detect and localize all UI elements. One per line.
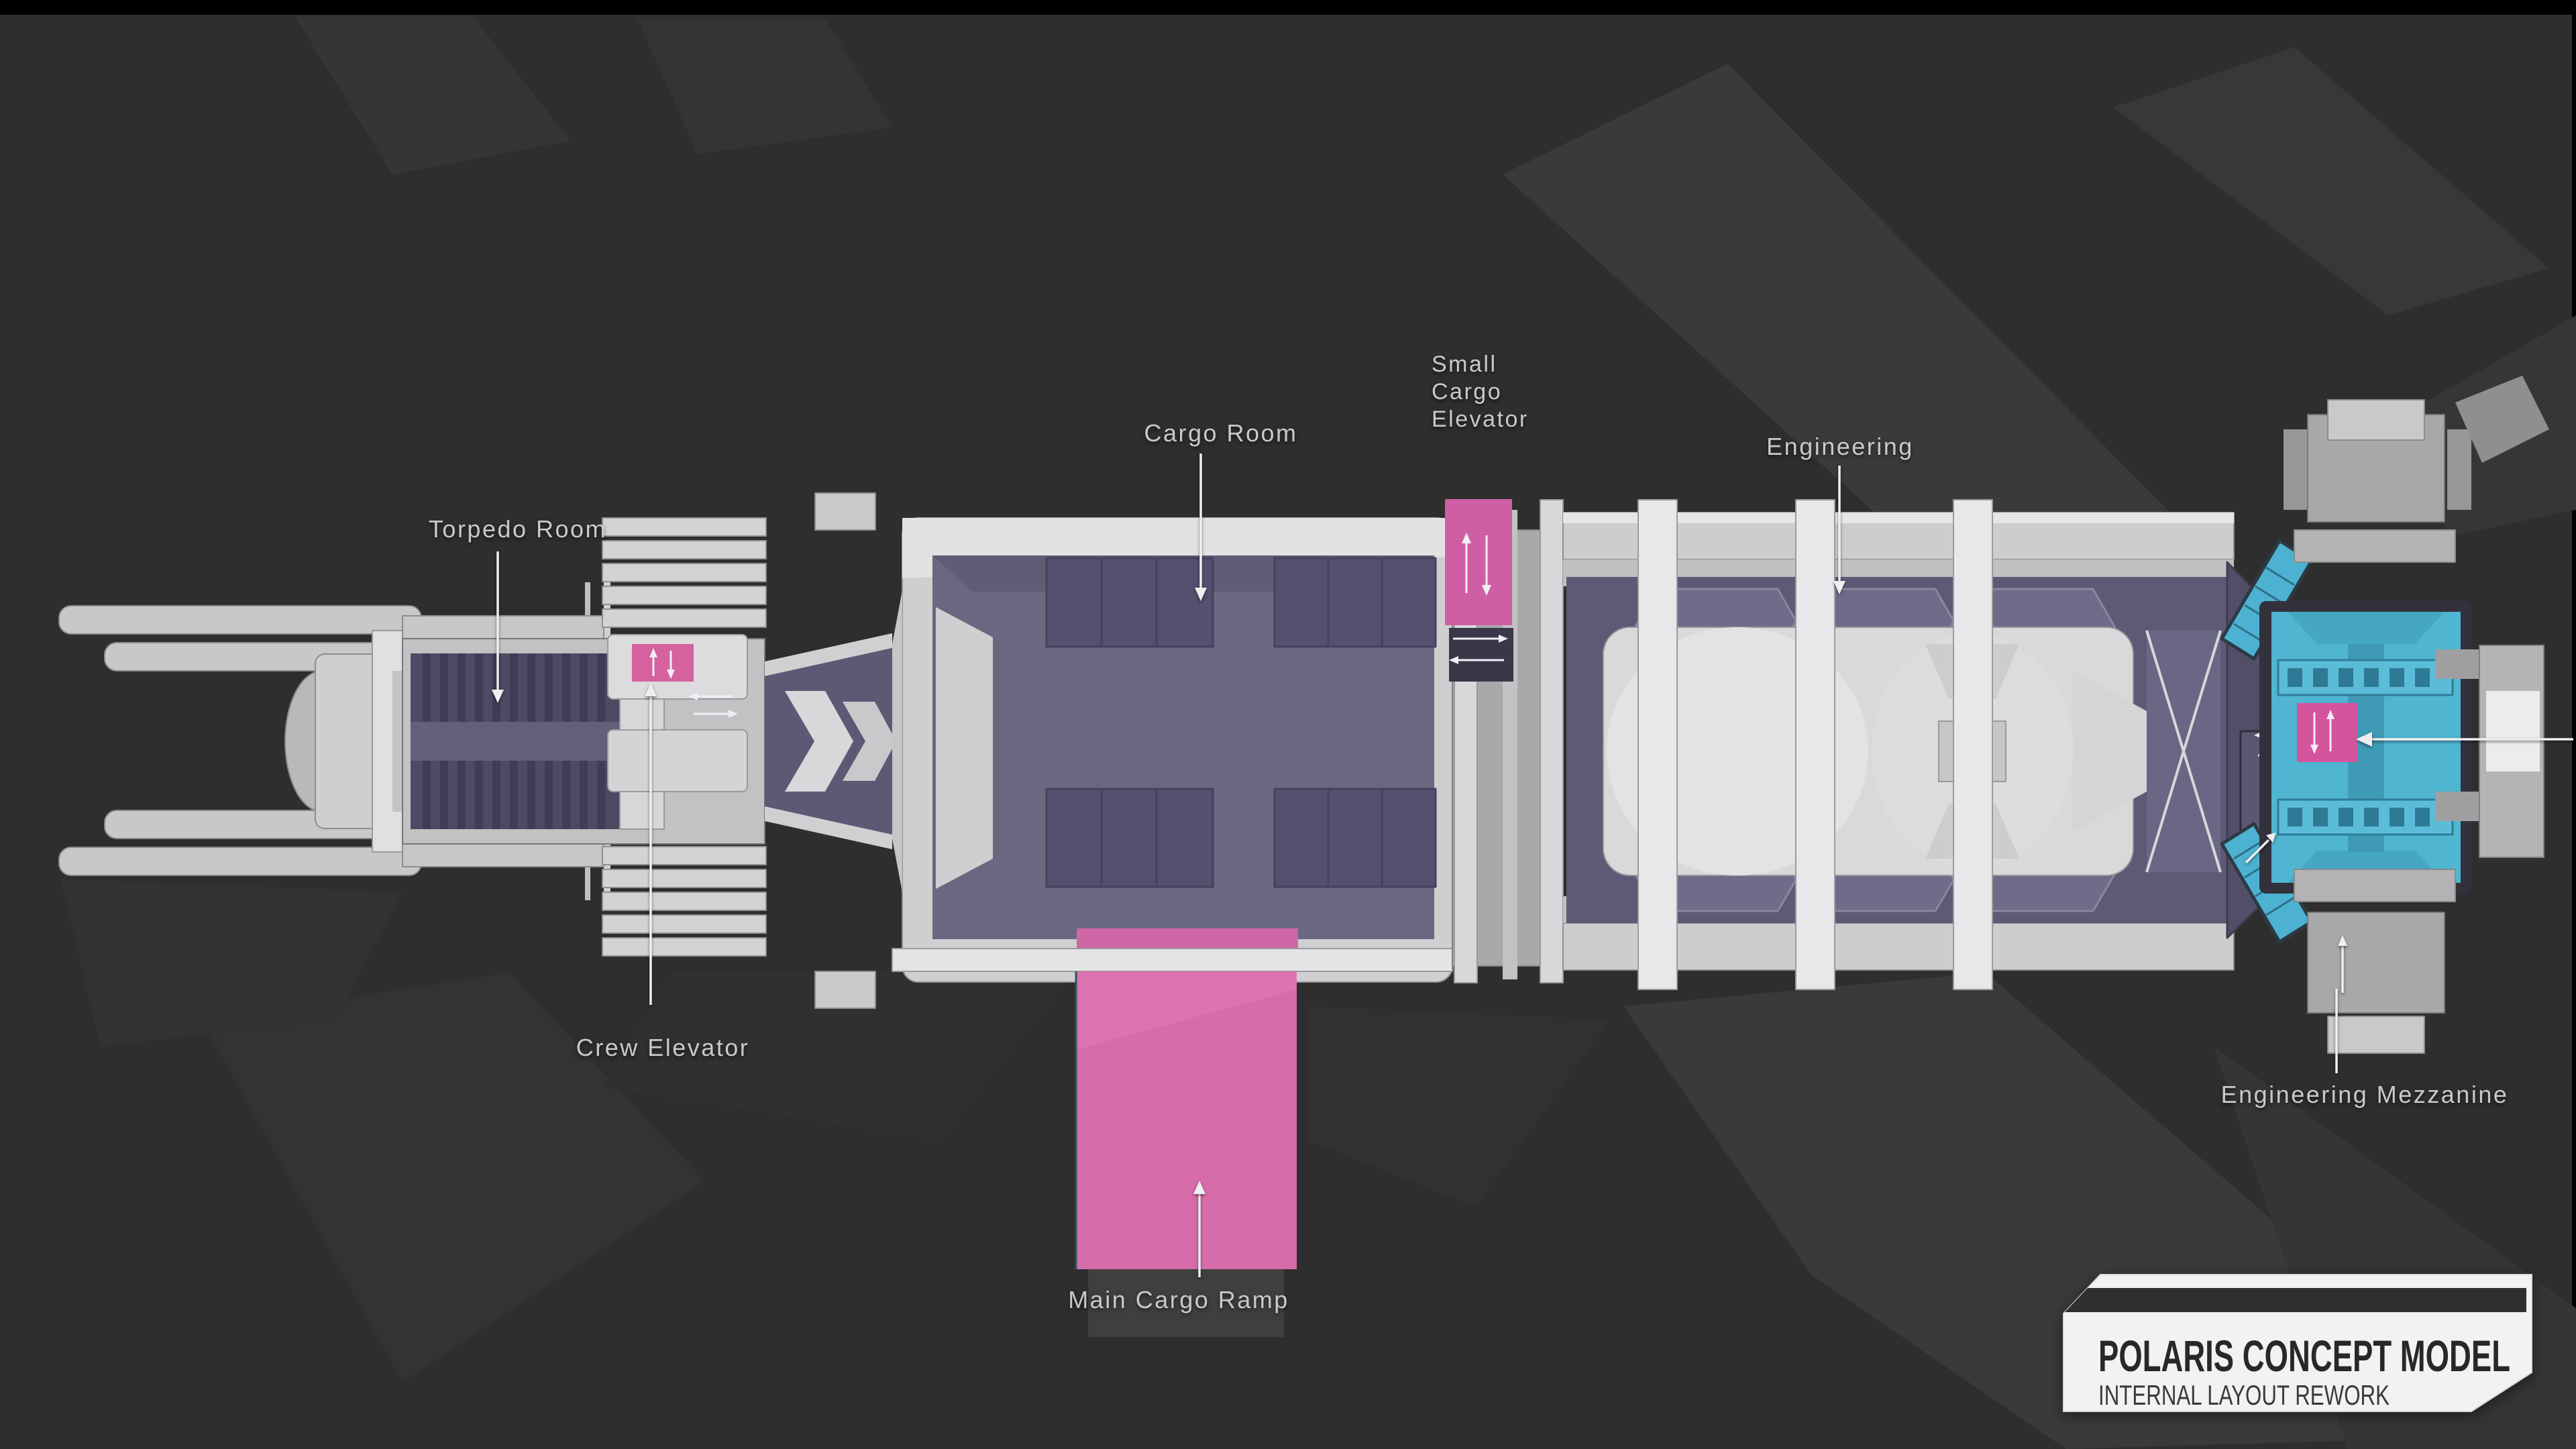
polaris-concept-diagram: Torpedo Room Cargo Room Small Cargo Elev…	[0, 0, 2576, 1449]
mid-connector	[1445, 499, 1563, 983]
engineering-section	[1563, 500, 2234, 989]
neck-section	[765, 633, 896, 849]
right-black-edge	[2572, 0, 2576, 1449]
title-card-subtitle: INTERNAL LAYOUT REWORK	[2098, 1379, 2390, 1411]
title-card: POLARIS CONCEPT MODEL INTERNAL LAYOUT RE…	[2063, 1275, 2532, 1411]
engineering-mezzanine-highlight	[2259, 601, 2471, 894]
label-torpedo-room: Torpedo Room	[429, 515, 607, 543]
label-cargo-room: Cargo Room	[1144, 419, 1297, 447]
label-small-cargo-elevator-line2: Cargo	[1432, 379, 1502, 405]
label-small-cargo-elevator-line1: Small	[1432, 352, 1497, 377]
main-cargo-ramp-highlight	[1075, 971, 1297, 1337]
mezzanine-elevator-highlight	[2297, 703, 2357, 762]
label-main-cargo-ramp: Main Cargo Ramp	[1068, 1286, 1289, 1313]
label-engineering-mezzanine: Engineering Mezzanine	[2221, 1081, 2509, 1108]
crew-elevator-highlight	[632, 644, 694, 682]
ramp-threshold-pink	[1077, 928, 1298, 949]
label-engineering: Engineering	[1766, 433, 1914, 460]
cargo-room-section	[815, 493, 1452, 1008]
small-cargo-elevator-highlight	[1445, 499, 1512, 625]
top-black-bar	[0, 0, 2576, 15]
label-crew-elevator: Crew Elevator	[576, 1034, 750, 1061]
title-card-title: POLARIS CONCEPT MODEL	[2098, 1331, 2510, 1381]
label-small-cargo-elevator-line3: Elevator	[1432, 407, 1529, 432]
title-card-top-bar	[2065, 1288, 2526, 1312]
